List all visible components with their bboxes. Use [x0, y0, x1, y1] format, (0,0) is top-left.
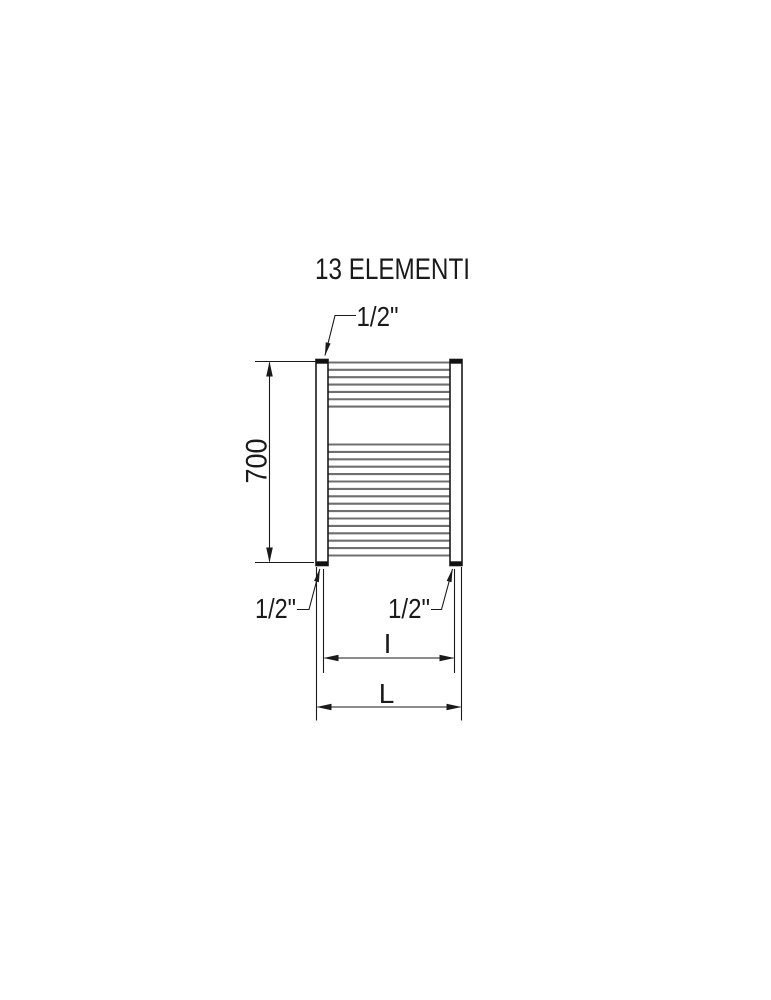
technical-drawing: 13 ELEMENTI 1/2" 700 1/2" [0, 0, 771, 1000]
drawing-title: 13 ELEMENTI [315, 253, 470, 286]
bottom-left-connection-callout: 1/2" [255, 569, 320, 624]
overall-dim-label: L [379, 678, 395, 709]
drawing-canvas: 13 ELEMENTI 1/2" 700 1/2" [0, 0, 771, 1000]
top-connection-label: 1/2" [357, 301, 399, 332]
left-collector-top-cap [316, 360, 328, 364]
radiator [316, 360, 462, 566]
radiator-tubes [329, 363, 450, 556]
right-collector-top-cap [450, 360, 462, 364]
bottom-right-connection-callout: 1/2" [388, 569, 453, 624]
top-connection-callout: 1/2" [325, 301, 399, 356]
radiator-right-collector [450, 360, 462, 566]
radiator-left-collector [316, 360, 328, 566]
interaxis-dim-label: I [384, 628, 392, 659]
height-dim-label: 700 [241, 439, 274, 484]
bottom-left-connection-label: 1/2" [255, 593, 296, 624]
height-dimension: 700 [241, 362, 317, 563]
top-connection-leader [325, 316, 356, 356]
bottom-right-connection-label: 1/2" [388, 593, 430, 624]
right-collector-bottom-cap [450, 561, 462, 565]
left-collector-bottom-cap [316, 561, 328, 565]
bottom-right-connection-leader [431, 569, 453, 610]
